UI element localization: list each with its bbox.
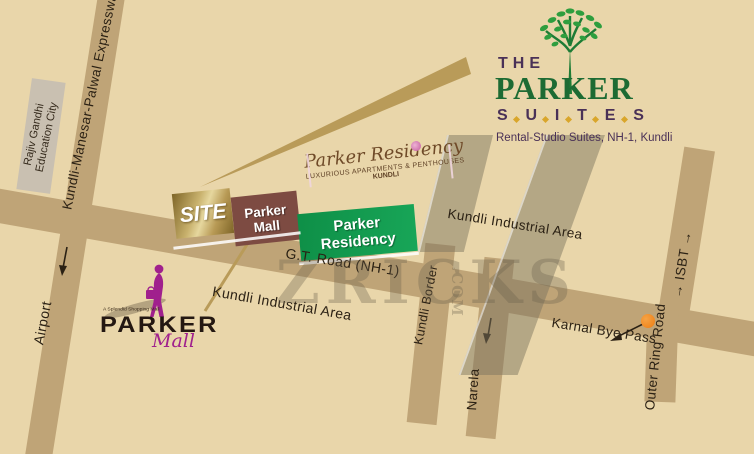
education-city-block: Rajiv Gandhi Education City (16, 78, 65, 194)
suites-separator-dot (513, 116, 520, 123)
site-marker: SITE (172, 188, 234, 239)
suites-separator-dot (621, 116, 628, 123)
suites-letter: U (525, 107, 537, 125)
suites-separator-dot (565, 116, 572, 123)
narela-label: Narela (464, 368, 482, 411)
suites-separator-dot (542, 116, 549, 123)
site-label: SITE (179, 199, 228, 228)
education-city-label: Rajiv Gandhi Education City (21, 99, 61, 174)
suites-letter: S (633, 107, 644, 125)
logo-parker: PARKER (495, 70, 634, 107)
logo-suites: S U I T E S (497, 107, 644, 125)
junction-dot (641, 314, 655, 328)
suites-letter: E (605, 107, 616, 125)
location-map: Rajiv Gandhi Education City SITE Parker … (0, 0, 754, 454)
suites-letter: T (577, 107, 587, 125)
parker-suites-logo: THE PARKER S U I T E S Rental-Studio Sui… (490, 2, 670, 152)
mall-logo-sub: Mall (152, 330, 195, 352)
suites-letter: S (497, 107, 508, 125)
zricks-watermark-suffix: .COM (448, 266, 466, 317)
logo-tagline: Rental-Studio Suites, NH-1, Kundli (496, 132, 672, 144)
suites-separator-dot (592, 116, 599, 123)
suites-letter: I (555, 107, 559, 125)
mall-logo-tagline: A Splendid Shopping Mall (103, 306, 160, 312)
zricks-watermark: ZRICKS (276, 248, 577, 318)
parker-mall-logo: A Splendid Shopping Mall PARKER Mall (95, 268, 235, 356)
